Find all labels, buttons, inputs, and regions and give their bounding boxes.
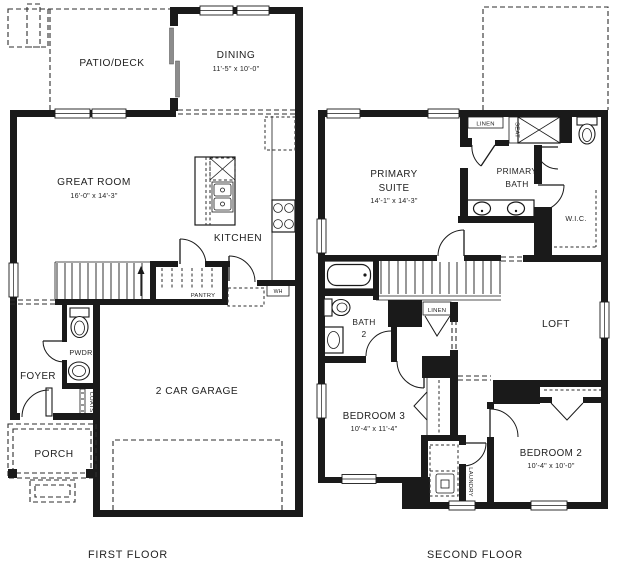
window-bedroom2-bottom	[531, 501, 567, 510]
room-dims-dining: 11'-5" x 10'-0"	[213, 64, 260, 73]
front-door	[20, 388, 53, 420]
room-label-garage: 2 CAR GARAGE	[156, 386, 238, 397]
first-floor-plan: WH	[8, 4, 303, 561]
stairs-second-floor	[376, 257, 523, 300]
bedroom2-closet	[544, 390, 601, 420]
window-greatroom-left	[9, 263, 18, 297]
bedroom3-closet	[414, 376, 451, 438]
room-label-primary-bath-2: BATH	[505, 179, 528, 189]
room-label-primary-suite-2: SUITE	[379, 183, 410, 194]
coats-closet	[80, 389, 85, 414]
laundry-closet	[430, 443, 486, 496]
room-label-coats: COATS	[88, 392, 94, 413]
window-greatroom-2	[92, 109, 126, 118]
label-linen-bath: LINEN	[476, 122, 494, 128]
room-label-patio: PATIO/DECK	[79, 58, 144, 69]
pantry-door	[180, 239, 206, 265]
island-sink-icon	[212, 182, 233, 212]
stair-rail-dashed	[501, 257, 523, 261]
shower-icon	[518, 117, 560, 143]
optional-area-outline	[483, 7, 608, 110]
garage-entry-door	[229, 256, 255, 282]
window-loft-right	[600, 302, 609, 338]
window-bedroom3-bottom	[342, 475, 376, 484]
stairs-up-arrow	[138, 266, 145, 296]
room-label-laundry: LAUNDRY	[467, 467, 473, 496]
dining-kitchen-opening	[178, 110, 295, 114]
window-dining-2	[237, 6, 269, 15]
room-label-wic: W.I.C.	[565, 214, 586, 223]
bath2-toilet-icon	[324, 299, 350, 316]
room-label-bedroom2: BEDROOM 2	[520, 448, 582, 459]
room-label-great-room: GREAT ROOM	[57, 177, 131, 188]
garage-door-outline	[113, 440, 282, 510]
bedroom3-door	[397, 361, 424, 388]
room-label-loft: LOFT	[542, 319, 570, 330]
kitchen-island	[195, 157, 235, 225]
label-seat: SEAT	[514, 122, 520, 138]
porch-outline	[8, 424, 96, 502]
water-heater-label: WH	[274, 289, 283, 295]
window-greatroom-1	[55, 109, 90, 118]
powder-toilet-icon	[70, 308, 89, 338]
label-linen-hall: LINEN	[428, 308, 446, 314]
room-label-primary-suite-1: PRIMARY	[370, 169, 417, 180]
bathtub-icon	[324, 261, 374, 289]
room-label-kitchen: KITCHEN	[214, 233, 262, 244]
refrigerator-outline	[265, 117, 295, 150]
room-label-bath2-2: 2	[361, 329, 366, 339]
second-floor-plan: PRIMARY SUITE 14'-1" x 14'-3" LINEN SEAT…	[317, 7, 609, 561]
room-label-bedroom3: BEDROOM 3	[343, 411, 406, 422]
primary-suite-door	[437, 230, 464, 262]
laundry-door	[463, 443, 486, 466]
room-label-porch: PORCH	[34, 449, 73, 460]
window-suite-2	[428, 109, 459, 118]
floor-plan-canvas: WH	[0, 0, 617, 582]
powder-sink-icon	[69, 362, 90, 380]
room-label-powder: PWDR	[69, 348, 92, 357]
room-label-primary-bath-1: PRIMARY	[497, 166, 538, 176]
room-dims-bedroom2: 10'-4" x 10'-0"	[527, 461, 574, 470]
stairs-first-floor	[55, 262, 150, 299]
window-hall-bottom	[449, 501, 475, 510]
room-label-bath2-1: BATH	[352, 317, 375, 327]
kitchen-counter	[265, 116, 295, 280]
primary-bath	[464, 117, 597, 247]
vanity-double-sink	[464, 200, 534, 217]
bath2-door	[366, 331, 391, 356]
window-suite-left	[317, 219, 326, 253]
bath2-sink-icon	[324, 327, 343, 353]
room-dims-great-room: 16'-0" x 14'-3"	[70, 191, 117, 200]
water-heater: WH	[228, 285, 289, 306]
room-label-pantry: PANTRY	[191, 293, 216, 299]
first-floor-title: FIRST FLOOR	[88, 549, 168, 561]
room-dims-bedroom3: 10'-4" x 11'-4"	[351, 424, 398, 433]
range-icon	[272, 200, 295, 232]
bedroom2-door	[490, 409, 518, 437]
window-suite-1	[327, 109, 360, 118]
primary-toilet-icon	[577, 117, 597, 144]
patio-deck-outline	[8, 4, 170, 110]
room-dims-primary-suite: 14'-1" x 14'-3"	[370, 196, 417, 205]
room-label-foyer: FOYER	[20, 371, 56, 382]
room-label-dining: DINING	[217, 50, 256, 61]
pantry-shelves	[162, 268, 212, 288]
window-dining-1	[200, 6, 233, 15]
powder-door	[43, 341, 64, 362]
window-bedroom3-left	[317, 384, 326, 418]
sliding-door	[169, 26, 180, 98]
second-floor-title: SECOND FLOOR	[427, 549, 523, 561]
